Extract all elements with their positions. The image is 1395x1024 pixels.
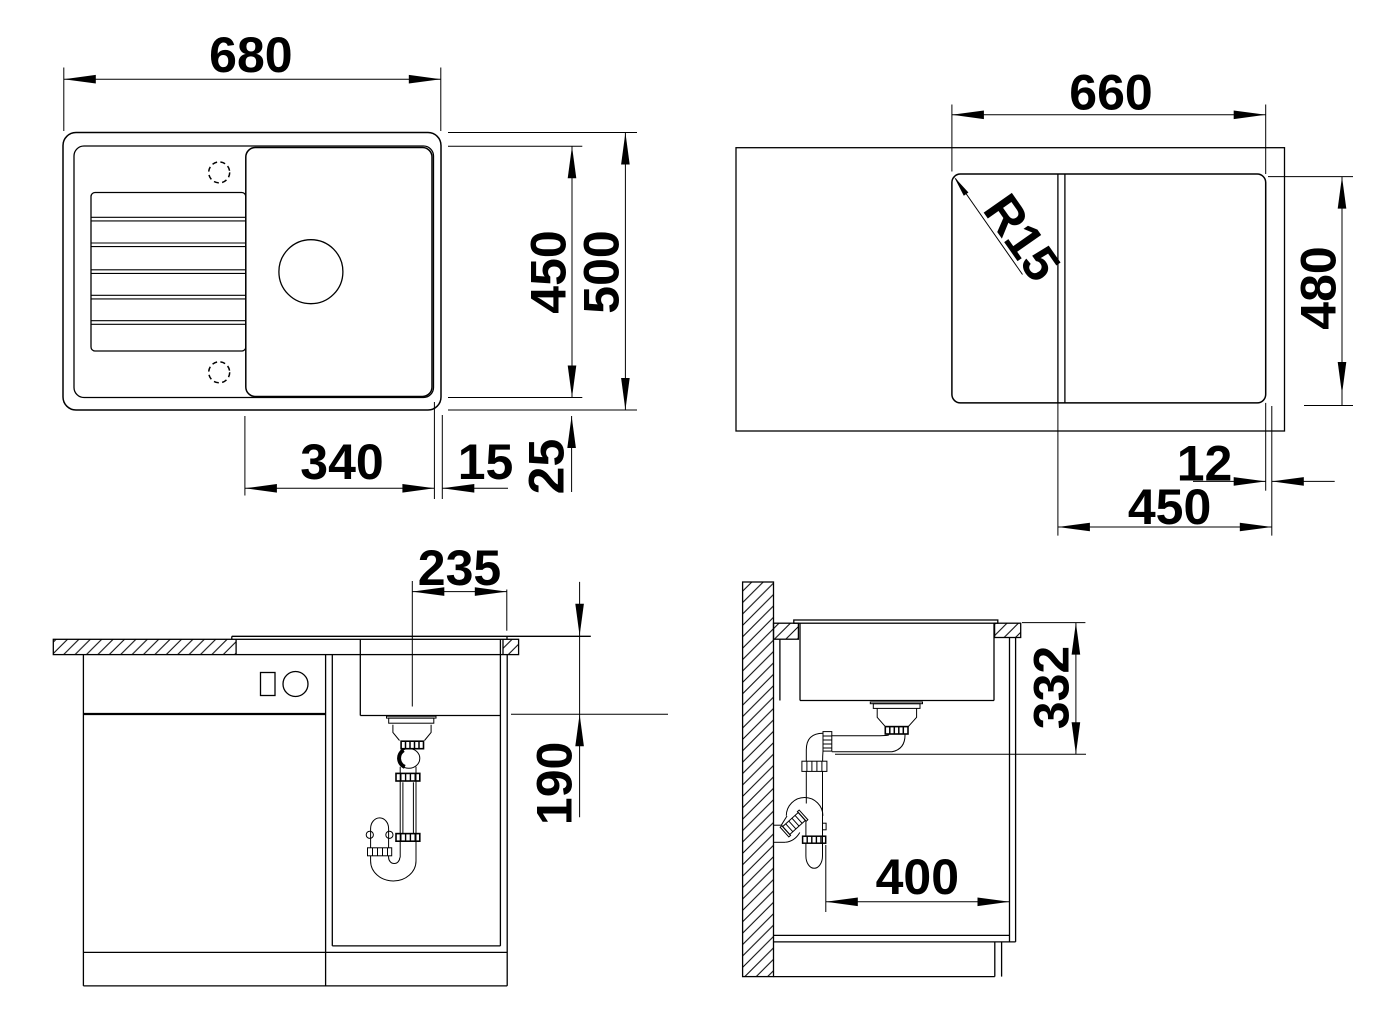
- svg-text:480: 480: [1291, 246, 1347, 329]
- svg-text:400: 400: [876, 849, 959, 905]
- svg-text:680: 680: [209, 27, 292, 83]
- svg-text:15: 15: [458, 434, 514, 490]
- svg-text:235: 235: [418, 540, 501, 596]
- svg-text:25: 25: [519, 439, 575, 495]
- svg-text:500: 500: [574, 230, 630, 313]
- svg-text:450: 450: [521, 230, 577, 313]
- svg-text:190: 190: [527, 742, 583, 825]
- svg-text:660: 660: [1069, 65, 1152, 121]
- svg-text:332: 332: [1024, 646, 1080, 729]
- svg-text:340: 340: [300, 434, 383, 490]
